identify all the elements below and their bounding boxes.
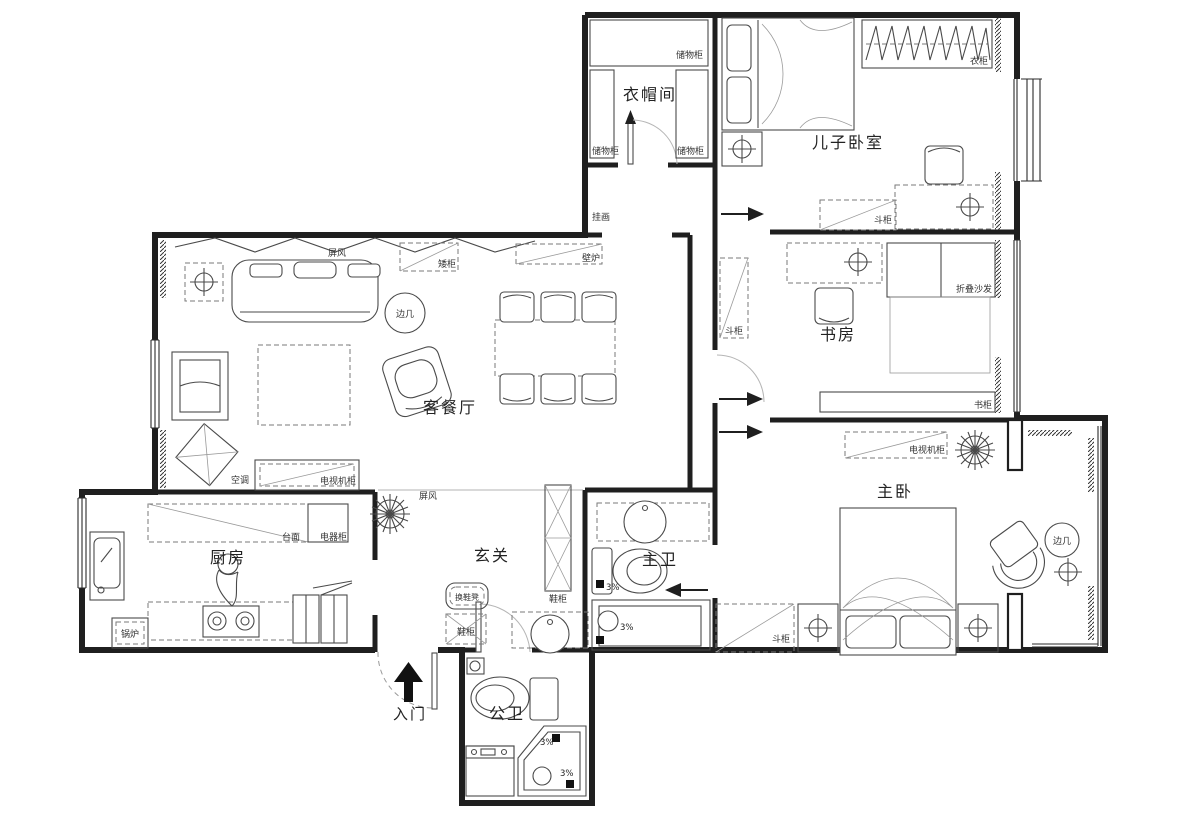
label-side-table: 边几 [1053,536,1071,547]
floor-lamp-box [185,263,223,301]
curtain [1088,438,1094,492]
dining-chair [541,374,575,404]
label-guest-bath: 公卫 [489,704,525,723]
single-bed [722,18,854,130]
label-folding-screen: 屏风 [328,248,346,259]
room-master-bath [592,501,710,650]
double-bed [840,508,956,655]
study-chair [815,288,853,324]
study-door [717,355,764,402]
air-conditioner-unit [176,424,238,486]
dining-chair [500,374,534,404]
label-master-bedroom: 主卧 [877,482,913,501]
label-shoe-bench: 换鞋凳 [455,592,479,602]
label-chest-of-drawers: 斗柜 [772,633,790,645]
curtain [995,240,1001,298]
label-air-conditioner: 空调 [231,474,249,486]
sofa [232,260,380,322]
label-study: 书房 [820,325,856,344]
label-shoe-cabinet: 鞋柜 [549,593,567,605]
room-master-bedroom [716,430,1082,655]
floor-plan: 衣帽间 儿子卧室 书房 客餐厅 主卧 厨房 玄关 主卫 公卫 入门 储物柜 储物… [0,0,1200,824]
label-bookcase: 书柜 [974,399,992,411]
room-son-bedroom [722,18,993,230]
label-appliance-cabinet: 电器柜 [320,531,347,543]
bay-window-son-bedroom [1013,79,1042,181]
label-slope: 3% [540,738,554,748]
curtain [995,357,1001,413]
kitchen-sink [90,532,124,600]
label-storage-cabinet: 储物柜 [592,145,619,157]
label-chest-of-drawers: 斗柜 [725,325,743,337]
curtain [160,240,166,298]
dining-chair [541,292,575,322]
label-entry-hall: 玄关 [474,546,510,565]
label-storage-cabinet: 储物柜 [676,49,703,61]
label-countertop: 台面 [282,531,300,543]
label-hanging-picture: 挂画 [592,211,610,223]
curtain [160,430,166,488]
label-slope: 3% [606,583,620,593]
label-son-bedroom: 儿子卧室 [812,133,884,152]
nightstand-left [798,604,838,652]
label-fireplace: 壁炉 [582,252,600,264]
label-cloakroom: 衣帽间 [623,85,677,104]
desk-chair [925,146,963,184]
rug [258,345,350,425]
window-living-left [150,340,160,428]
cloakroom-door [625,110,677,164]
label-slope: 3% [560,769,574,779]
plant [370,494,410,534]
label-slope: 3% [620,623,634,633]
label-wardrobe: 衣柜 [970,55,988,67]
storage-cabinet-left [590,70,614,158]
balcony-pier-top [1008,420,1022,470]
chest-of-drawers-study [720,258,748,338]
washing-machine [466,746,514,796]
window-study-right [1013,240,1021,412]
label-shoe-cabinet: 鞋柜 [457,626,475,638]
desk [895,185,993,229]
room-kitchen [90,504,352,648]
label-boiler: 锅炉 [121,628,139,640]
guest-bath-door [467,602,530,674]
dining-set [495,292,616,404]
curtain [1028,430,1072,436]
storage-cabinet-right [676,70,708,158]
label-folding-screen: 屏风 [419,491,437,502]
dining-chair [500,292,534,322]
label-living-dining: 客餐厅 [423,398,477,417]
curtain [995,172,1001,230]
label-storage-cabinet: 储物柜 [677,145,704,157]
stove [203,606,259,637]
pendant-lamp [1054,558,1082,586]
label-entrance: 入门 [393,705,427,723]
armchair-left [172,352,228,420]
entrance-arrow [394,662,423,702]
nightstand [722,132,762,166]
label-kitchen: 厨房 [210,548,246,567]
shower-master [592,600,710,650]
label-folding-sofa: 折叠沙发 [956,283,992,295]
walls [82,15,1105,803]
nightstand-right [958,604,998,652]
kitchen-counter-top [148,504,348,542]
window-kitchen-left [77,498,87,588]
label-chest-of-drawers: 斗柜 [874,214,892,226]
folding-sofa [887,243,995,373]
balcony-lounge [988,519,1082,597]
tall-cabinets [293,581,352,643]
balcony-pier-bottom [1008,594,1022,650]
curtain [1088,586,1094,640]
label-tv-cabinet: 电视机柜 [320,475,356,487]
dining-chair [582,292,616,322]
curtain [995,18,1001,72]
label-master-bath: 主卫 [642,550,678,569]
floor-drain [596,580,604,588]
hall-basin [512,612,588,653]
vanity [597,501,709,543]
folding-screen-zigzag [175,238,535,252]
plant [955,430,995,470]
study-desk [787,243,882,283]
floor-plan-drawing: 衣帽间 儿子卧室 书房 客餐厅 主卧 厨房 玄关 主卫 公卫 入门 储物柜 储物… [0,0,1200,824]
label-side-table: 边几 [396,309,414,320]
dining-chair [582,374,616,404]
label-tv-cabinet: 电视机柜 [909,444,945,456]
shoe-cabinet-tall [545,485,571,591]
label-low-cabinet: 矮柜 [438,258,456,270]
lounge-stool [988,519,1039,568]
